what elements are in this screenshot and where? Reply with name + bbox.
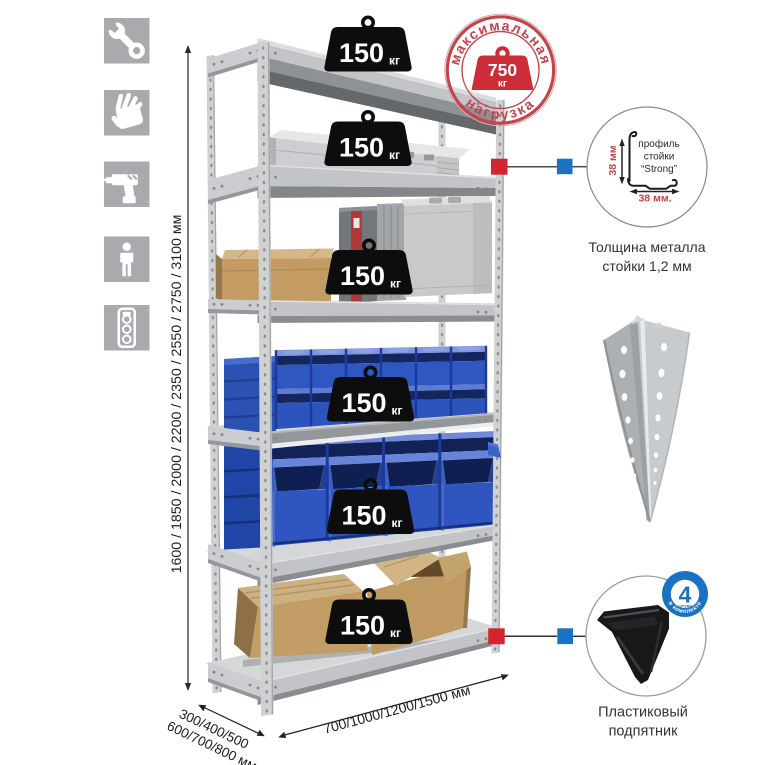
svg-text:стойки 1,2 мм: стойки 1,2 мм <box>602 258 691 274</box>
svg-text:“Strong”: “Strong” <box>641 164 677 175</box>
svg-text:кг: кг <box>390 277 401 291</box>
svg-text:кг: кг <box>391 404 402 418</box>
svg-text:кг: кг <box>389 148 400 162</box>
svg-text:кг: кг <box>498 79 507 90</box>
svg-text:Толщина металла: Толщина металла <box>589 239 706 255</box>
svg-text:кг: кг <box>389 54 400 68</box>
svg-text:штуки: штуки <box>678 604 692 609</box>
svg-text:38 мм.: 38 мм. <box>638 193 671 205</box>
svg-text:кг: кг <box>390 626 401 640</box>
svg-text:750: 750 <box>488 60 517 80</box>
svg-text:кг: кг <box>391 516 402 530</box>
svg-text:профиль: профиль <box>638 138 679 150</box>
svg-text:150: 150 <box>341 388 386 418</box>
svg-text:Пластиковый: Пластиковый <box>598 705 688 721</box>
svg-text:150: 150 <box>340 261 385 291</box>
svg-text:1600 / 1850 / 2000 / 2200 / 23: 1600 / 1850 / 2000 / 2200 / 2350 / 2550 … <box>169 215 185 574</box>
svg-text:150: 150 <box>339 38 384 68</box>
svg-text:подпятник: подпятник <box>609 724 679 740</box>
svg-text:150: 150 <box>339 133 384 163</box>
svg-text:150: 150 <box>341 501 386 531</box>
svg-text:150: 150 <box>340 611 385 641</box>
svg-text:стойки: стойки <box>644 152 675 163</box>
svg-text:38 мм: 38 мм <box>607 145 619 175</box>
